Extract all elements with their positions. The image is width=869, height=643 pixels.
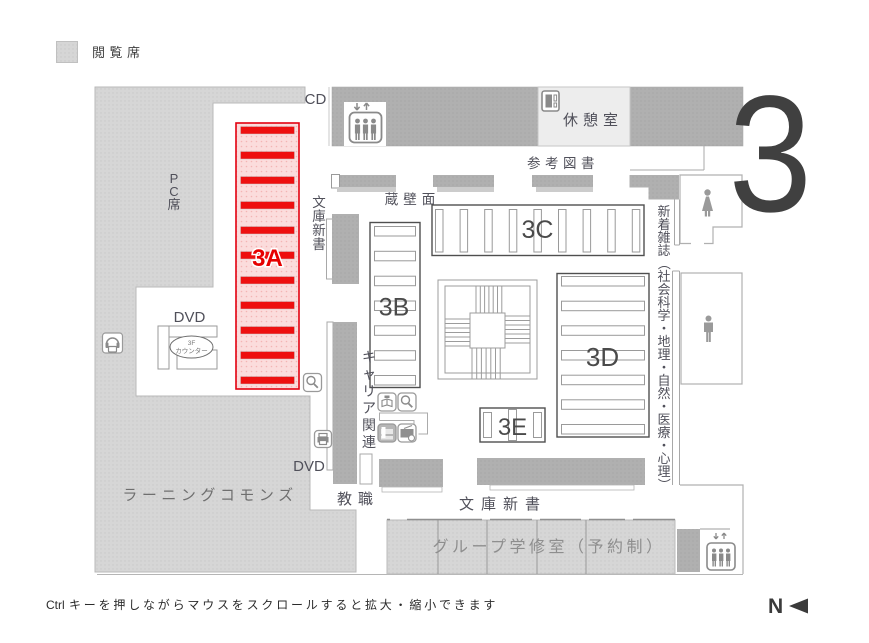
svg-text:理: 理 xyxy=(657,464,670,479)
svg-text:Ctrl: Ctrl xyxy=(46,598,65,612)
svg-text:庫: 庫 xyxy=(312,209,326,224)
svg-text:3F: 3F xyxy=(188,340,196,347)
svg-text:）: ） xyxy=(657,478,672,491)
svg-text:カウンター: カウンター xyxy=(175,346,208,355)
svg-text:誌: 誌 xyxy=(657,243,670,258)
svg-text:N: N xyxy=(768,595,783,618)
svg-text:3: 3 xyxy=(729,61,813,247)
svg-text:3C: 3C xyxy=(522,216,554,244)
svg-text:キ: キ xyxy=(362,349,376,365)
svg-text:文: 文 xyxy=(312,195,326,210)
svg-text:3D: 3D xyxy=(586,342,619,372)
svg-text:グループ学修室（予約制）: グループ学修室（予約制） xyxy=(432,538,665,556)
svg-text:新: 新 xyxy=(312,223,326,238)
svg-text:キーを押しながらマウスをスクロールすると拡大・縮小できます: キーを押しながらマウスをスクロールすると拡大・縮小できます xyxy=(69,597,498,612)
svg-text:3E: 3E xyxy=(498,414,527,441)
svg-text:書: 書 xyxy=(312,237,326,252)
svg-text:席: 席 xyxy=(167,197,180,212)
svg-text:参考図書: 参考図書 xyxy=(527,155,599,171)
svg-text:リ: リ xyxy=(362,383,376,399)
svg-text:3A: 3A xyxy=(252,245,283,272)
svg-text:ア: ア xyxy=(362,400,376,416)
svg-text:文庫新書: 文庫新書 xyxy=(459,496,547,513)
svg-text:ラーニングコモンズ: ラーニングコモンズ xyxy=(122,487,297,504)
svg-text:閲覧席: 閲覧席 xyxy=(92,45,145,60)
svg-text:連: 連 xyxy=(362,434,376,450)
svg-text:関: 関 xyxy=(362,417,376,433)
svg-text:3B: 3B xyxy=(379,294,410,322)
svg-text:休憩室: 休憩室 xyxy=(563,112,623,129)
svg-text:ャ: ャ xyxy=(362,366,376,382)
svg-text:CD: CD xyxy=(305,91,327,108)
svg-text:教職: 教職 xyxy=(337,491,379,508)
svg-text:DVD: DVD xyxy=(293,458,325,475)
svg-text:DVD: DVD xyxy=(174,309,206,326)
